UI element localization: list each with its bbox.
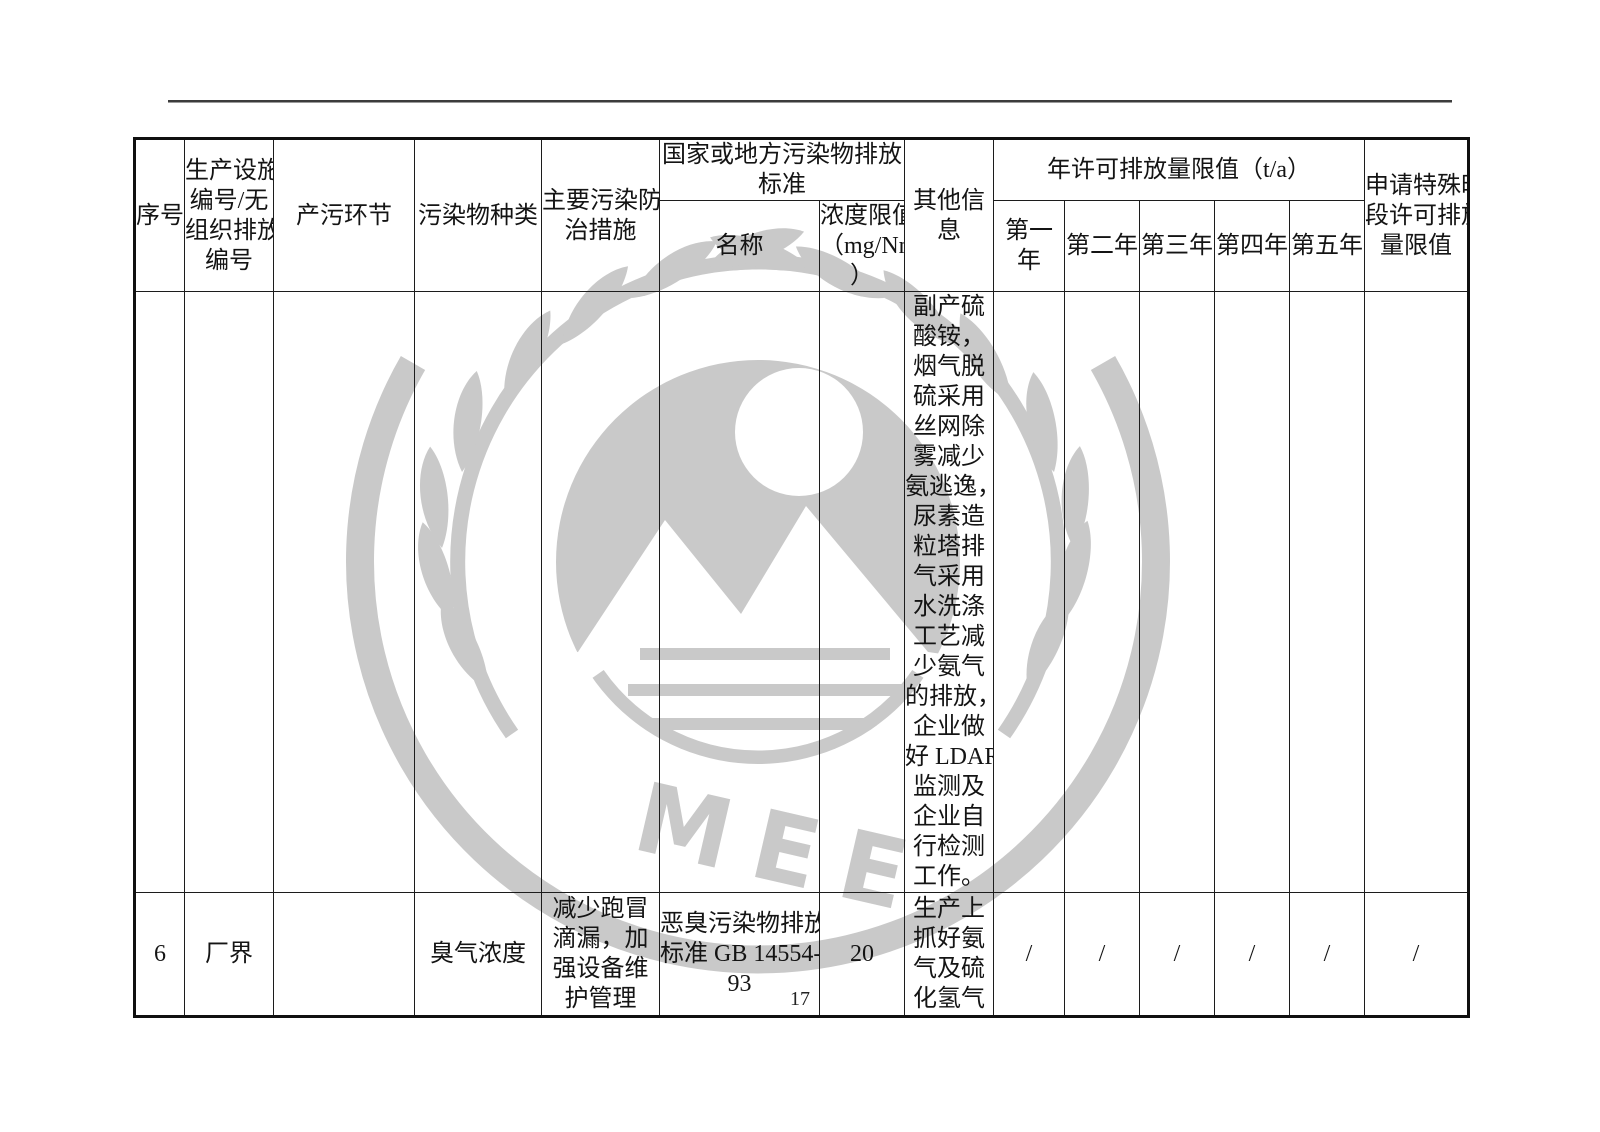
header-row-1: 序号 生产设施 编号/无 组织排放 编号 产污环节 污染物种类 主要污染防 治措…	[135, 139, 1469, 201]
document-page: MEE 序号 生产设施 编号/无 组织排放 编号 产污环节 污染物种类 主要污染…	[0, 0, 1600, 1132]
cell-cont-process	[274, 292, 415, 893]
cell-cont-pollutant	[415, 292, 542, 893]
page-number: 17	[0, 988, 1600, 1011]
table-row-continued: 副产硫 酸铵， 烟气脱 硫采用 丝网除 雾减少 氨逃逸， 尿素造 粒塔排 气采用…	[135, 292, 1469, 893]
cell-cont-special	[1365, 292, 1469, 893]
cell-cont-year2	[1065, 292, 1140, 893]
header-col-annual-group: 年许可排放量限值（t/a）	[994, 139, 1365, 201]
cell-cont-facility	[185, 292, 274, 893]
header-col-year4: 第四年	[1215, 201, 1290, 292]
header-col-pollutant: 污染物种类	[415, 139, 542, 292]
cell-cont-year4	[1215, 292, 1290, 893]
header-col-special: 申请特殊时 段许可排放 量限值	[1365, 139, 1469, 292]
cell-cont-index	[135, 292, 185, 893]
header-col-process: 产污环节	[274, 139, 415, 292]
cell-cont-measures	[542, 292, 660, 893]
header-col-limit: 浓度限值 （mg/Nm³ ）	[820, 201, 905, 292]
header-col-index: 序号	[135, 139, 185, 292]
header-col-standard-name: 名称	[660, 201, 820, 292]
header-col-measures: 主要污染防 治措施	[542, 139, 660, 292]
cell-cont-standard-name	[660, 292, 820, 893]
cell-cont-other-info: 副产硫 酸铵， 烟气脱 硫采用 丝网除 雾减少 氨逃逸， 尿素造 粒塔排 气采用…	[905, 292, 994, 893]
header-col-other: 其他信息	[905, 139, 994, 292]
header-col-standard-group: 国家或地方污染物排放标准	[660, 139, 905, 201]
header-col-year2: 第二年	[1065, 201, 1140, 292]
cell-cont-year1	[994, 292, 1065, 893]
header-col-year1: 第一年	[994, 201, 1065, 292]
header-rule	[168, 100, 1452, 103]
header-col-year3: 第三年	[1140, 201, 1215, 292]
cell-cont-year5	[1290, 292, 1365, 893]
cell-cont-year3	[1140, 292, 1215, 893]
permit-emission-table: 序号 生产设施 编号/无 组织排放 编号 产污环节 污染物种类 主要污染防 治措…	[133, 137, 1470, 1018]
header-col-facility: 生产设施 编号/无 组织排放 编号	[185, 139, 274, 292]
header-col-year5: 第五年	[1290, 201, 1365, 292]
cell-cont-limit	[820, 292, 905, 893]
